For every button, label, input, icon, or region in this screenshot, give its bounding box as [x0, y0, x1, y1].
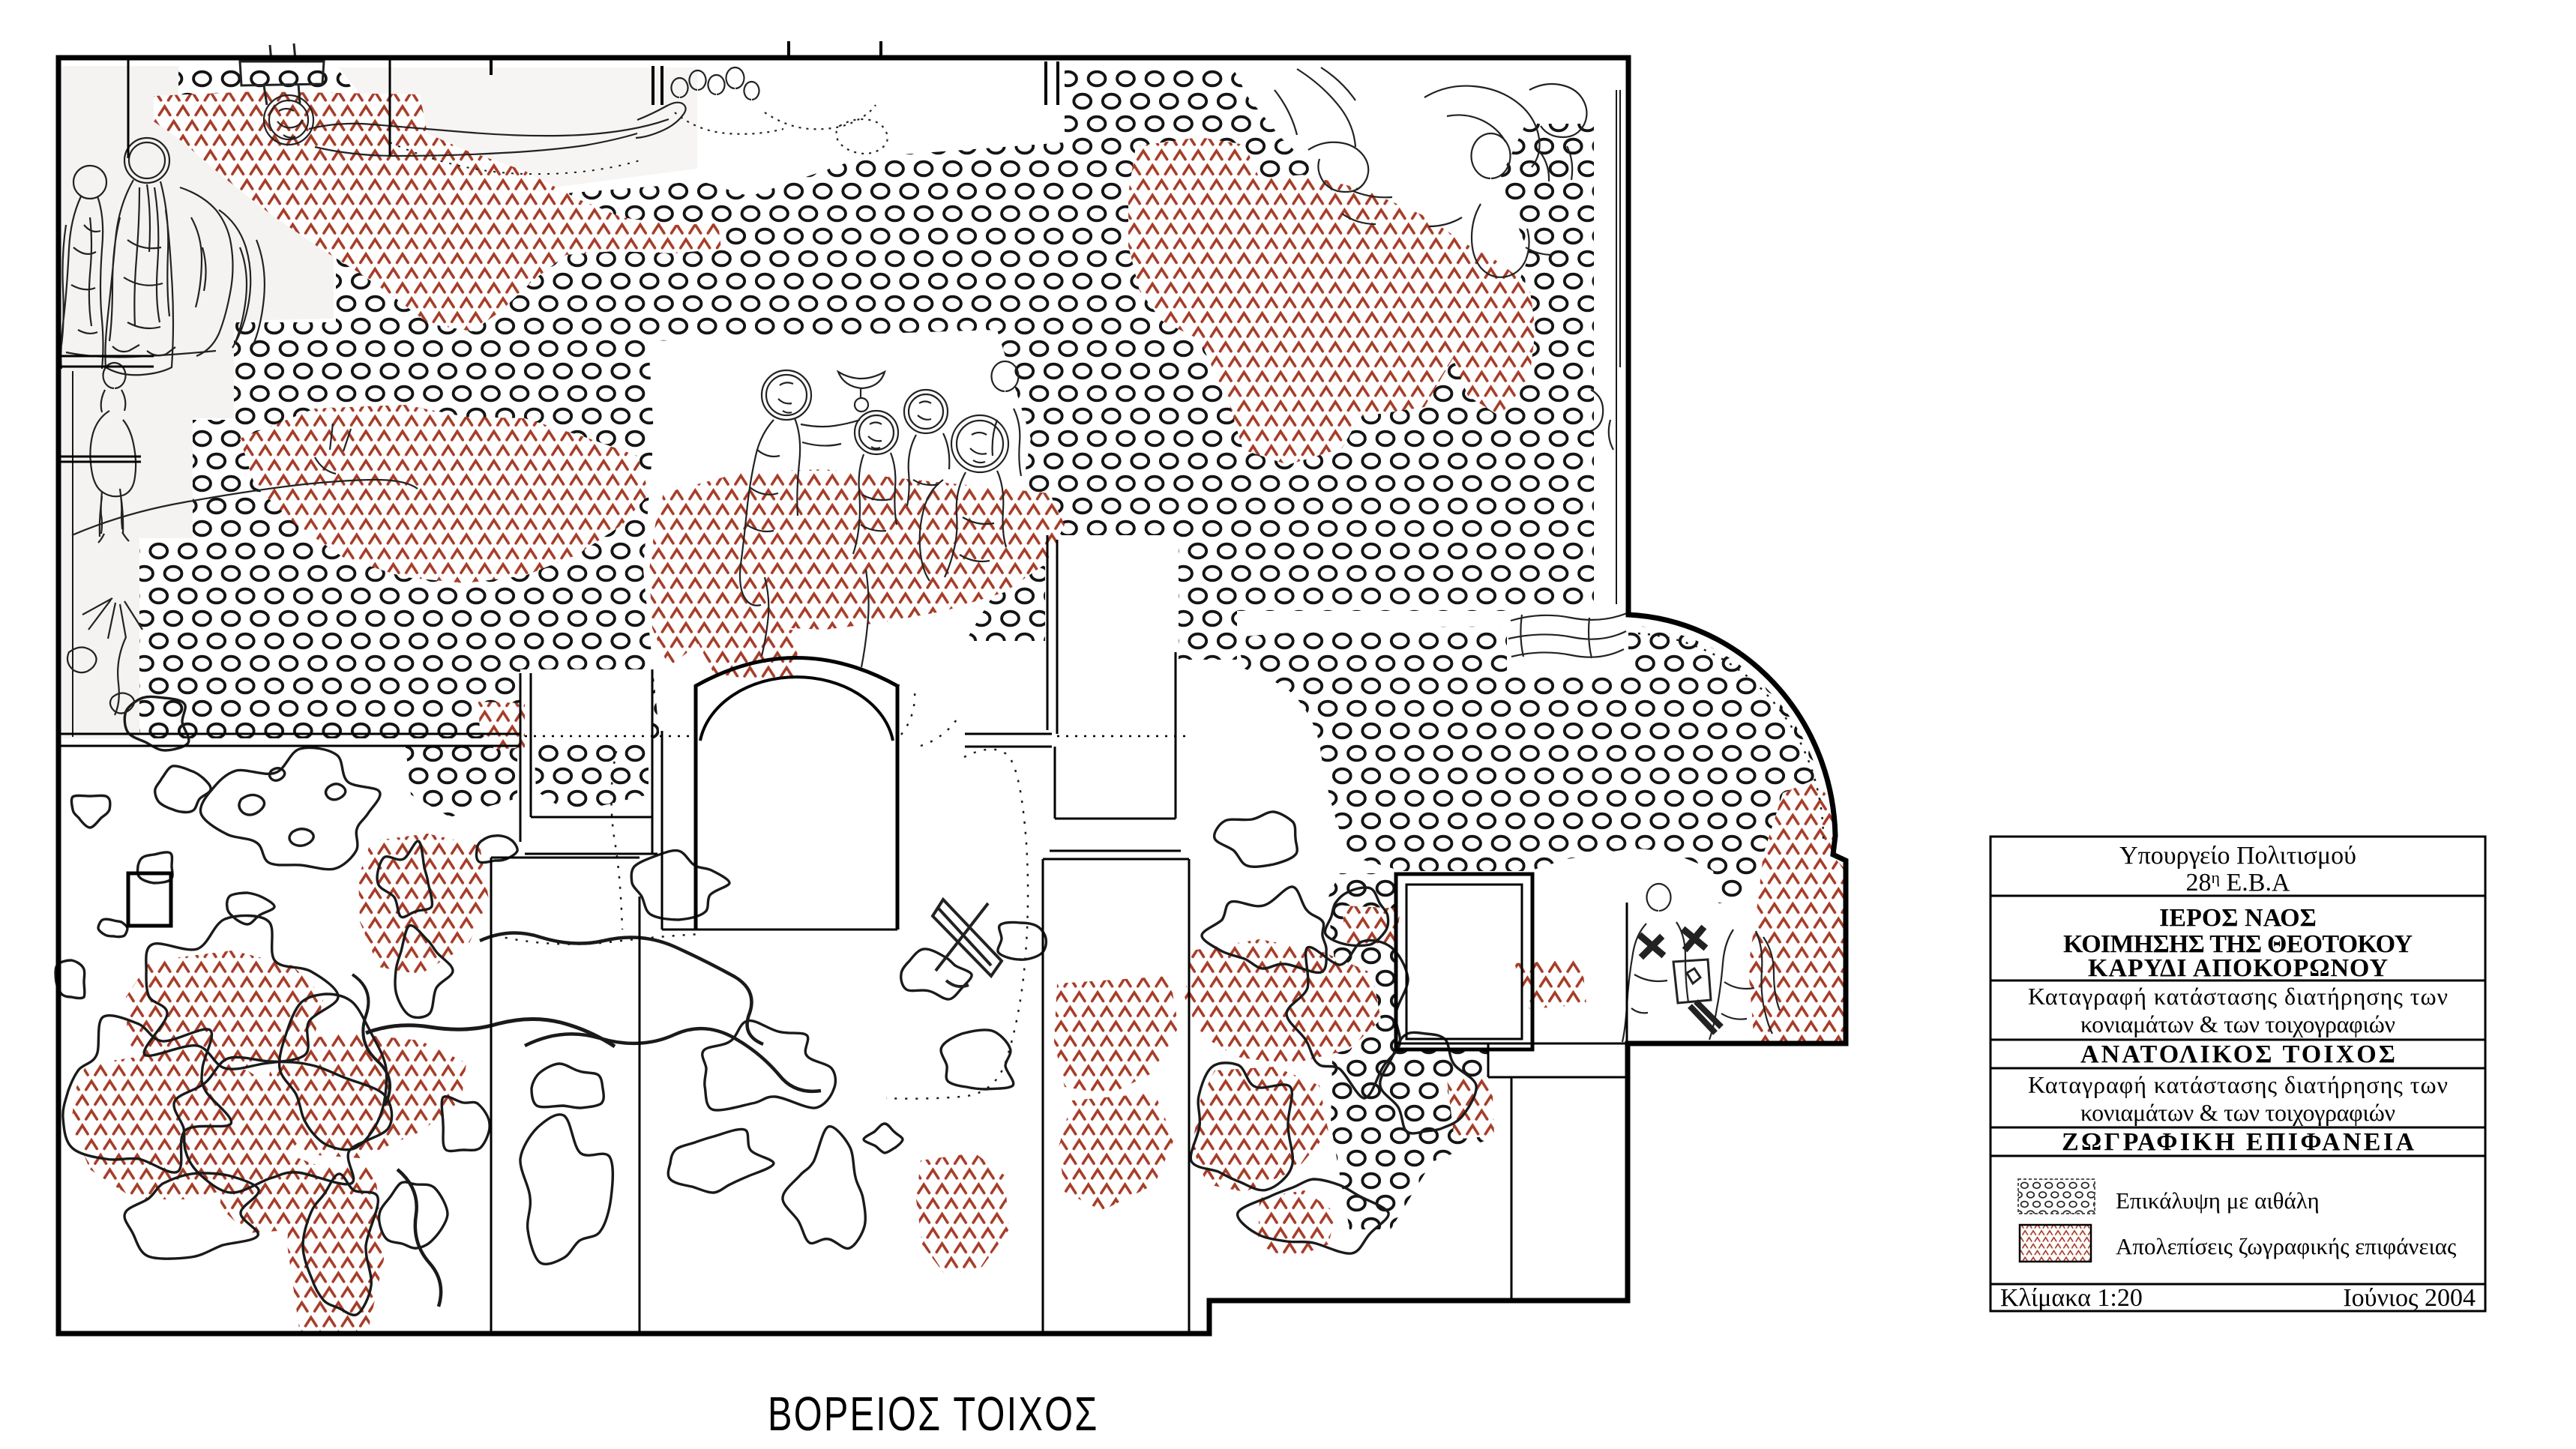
svg-text:κονιαμάτων & των τοιχογραφιών: κονιαμάτων & των τοιχογραφιών — [2080, 1099, 2395, 1126]
svg-text:ΑΝΑΤΟΛΙΚΟΣ ΤΟΙΧΟΣ: ΑΝΑΤΟΛΙΚΟΣ ΤΟΙΧΟΣ — [2080, 1040, 2395, 1068]
svg-text:Καταγραφή κατάστασης διατήρηση: Καταγραφή κατάστασης διατήρησης των — [2028, 983, 2448, 1010]
svg-text:Κλίμακα 1:20: Κλίμακα 1:20 — [2000, 1284, 2143, 1312]
svg-text:Απολεπίσεις ζωγραφικής επιφάνε: Απολεπίσεις ζωγραφικής επιφάνειας — [2116, 1233, 2456, 1259]
svg-text:Υπουργείο Πολιτισμού: Υπουργείο Πολιτισμού — [2119, 842, 2356, 870]
svg-text:Ιούνιος 2004: Ιούνιος 2004 — [2343, 1284, 2476, 1312]
svg-text:Επικάλυψη με αιθάλη: Επικάλυψη με αιθάλη — [2116, 1187, 2320, 1214]
svg-text:κονιαμάτων & των τοιχογραφιών: κονιαμάτων & των τοιχογραφιών — [2080, 1010, 2395, 1037]
svg-text:Καταγραφή κατάστασης διατήρηση: Καταγραφή κατάστασης διατήρησης των — [2028, 1071, 2448, 1098]
svg-text:28η Ε.Β.Α: 28η Ε.Β.Α — [2185, 868, 2290, 897]
svg-text:ΙΕΡΟΣ ΝΑΟΣ: ΙΕΡΟΣ ΝΑΟΣ — [2159, 904, 2317, 932]
svg-text:ΒΟΡΕΙΟΣ ΤΟΙΧΟΣ: ΒΟΡΕΙΟΣ ΤΟΙΧΟΣ — [768, 1388, 1099, 1442]
svg-text:ΚΑΡΥΔΙ ΑΠΟΚΟΡΩΝΟΥ: ΚΑΡΥΔΙ ΑΠΟΚΟΡΩΝΟΥ — [2088, 954, 2388, 982]
